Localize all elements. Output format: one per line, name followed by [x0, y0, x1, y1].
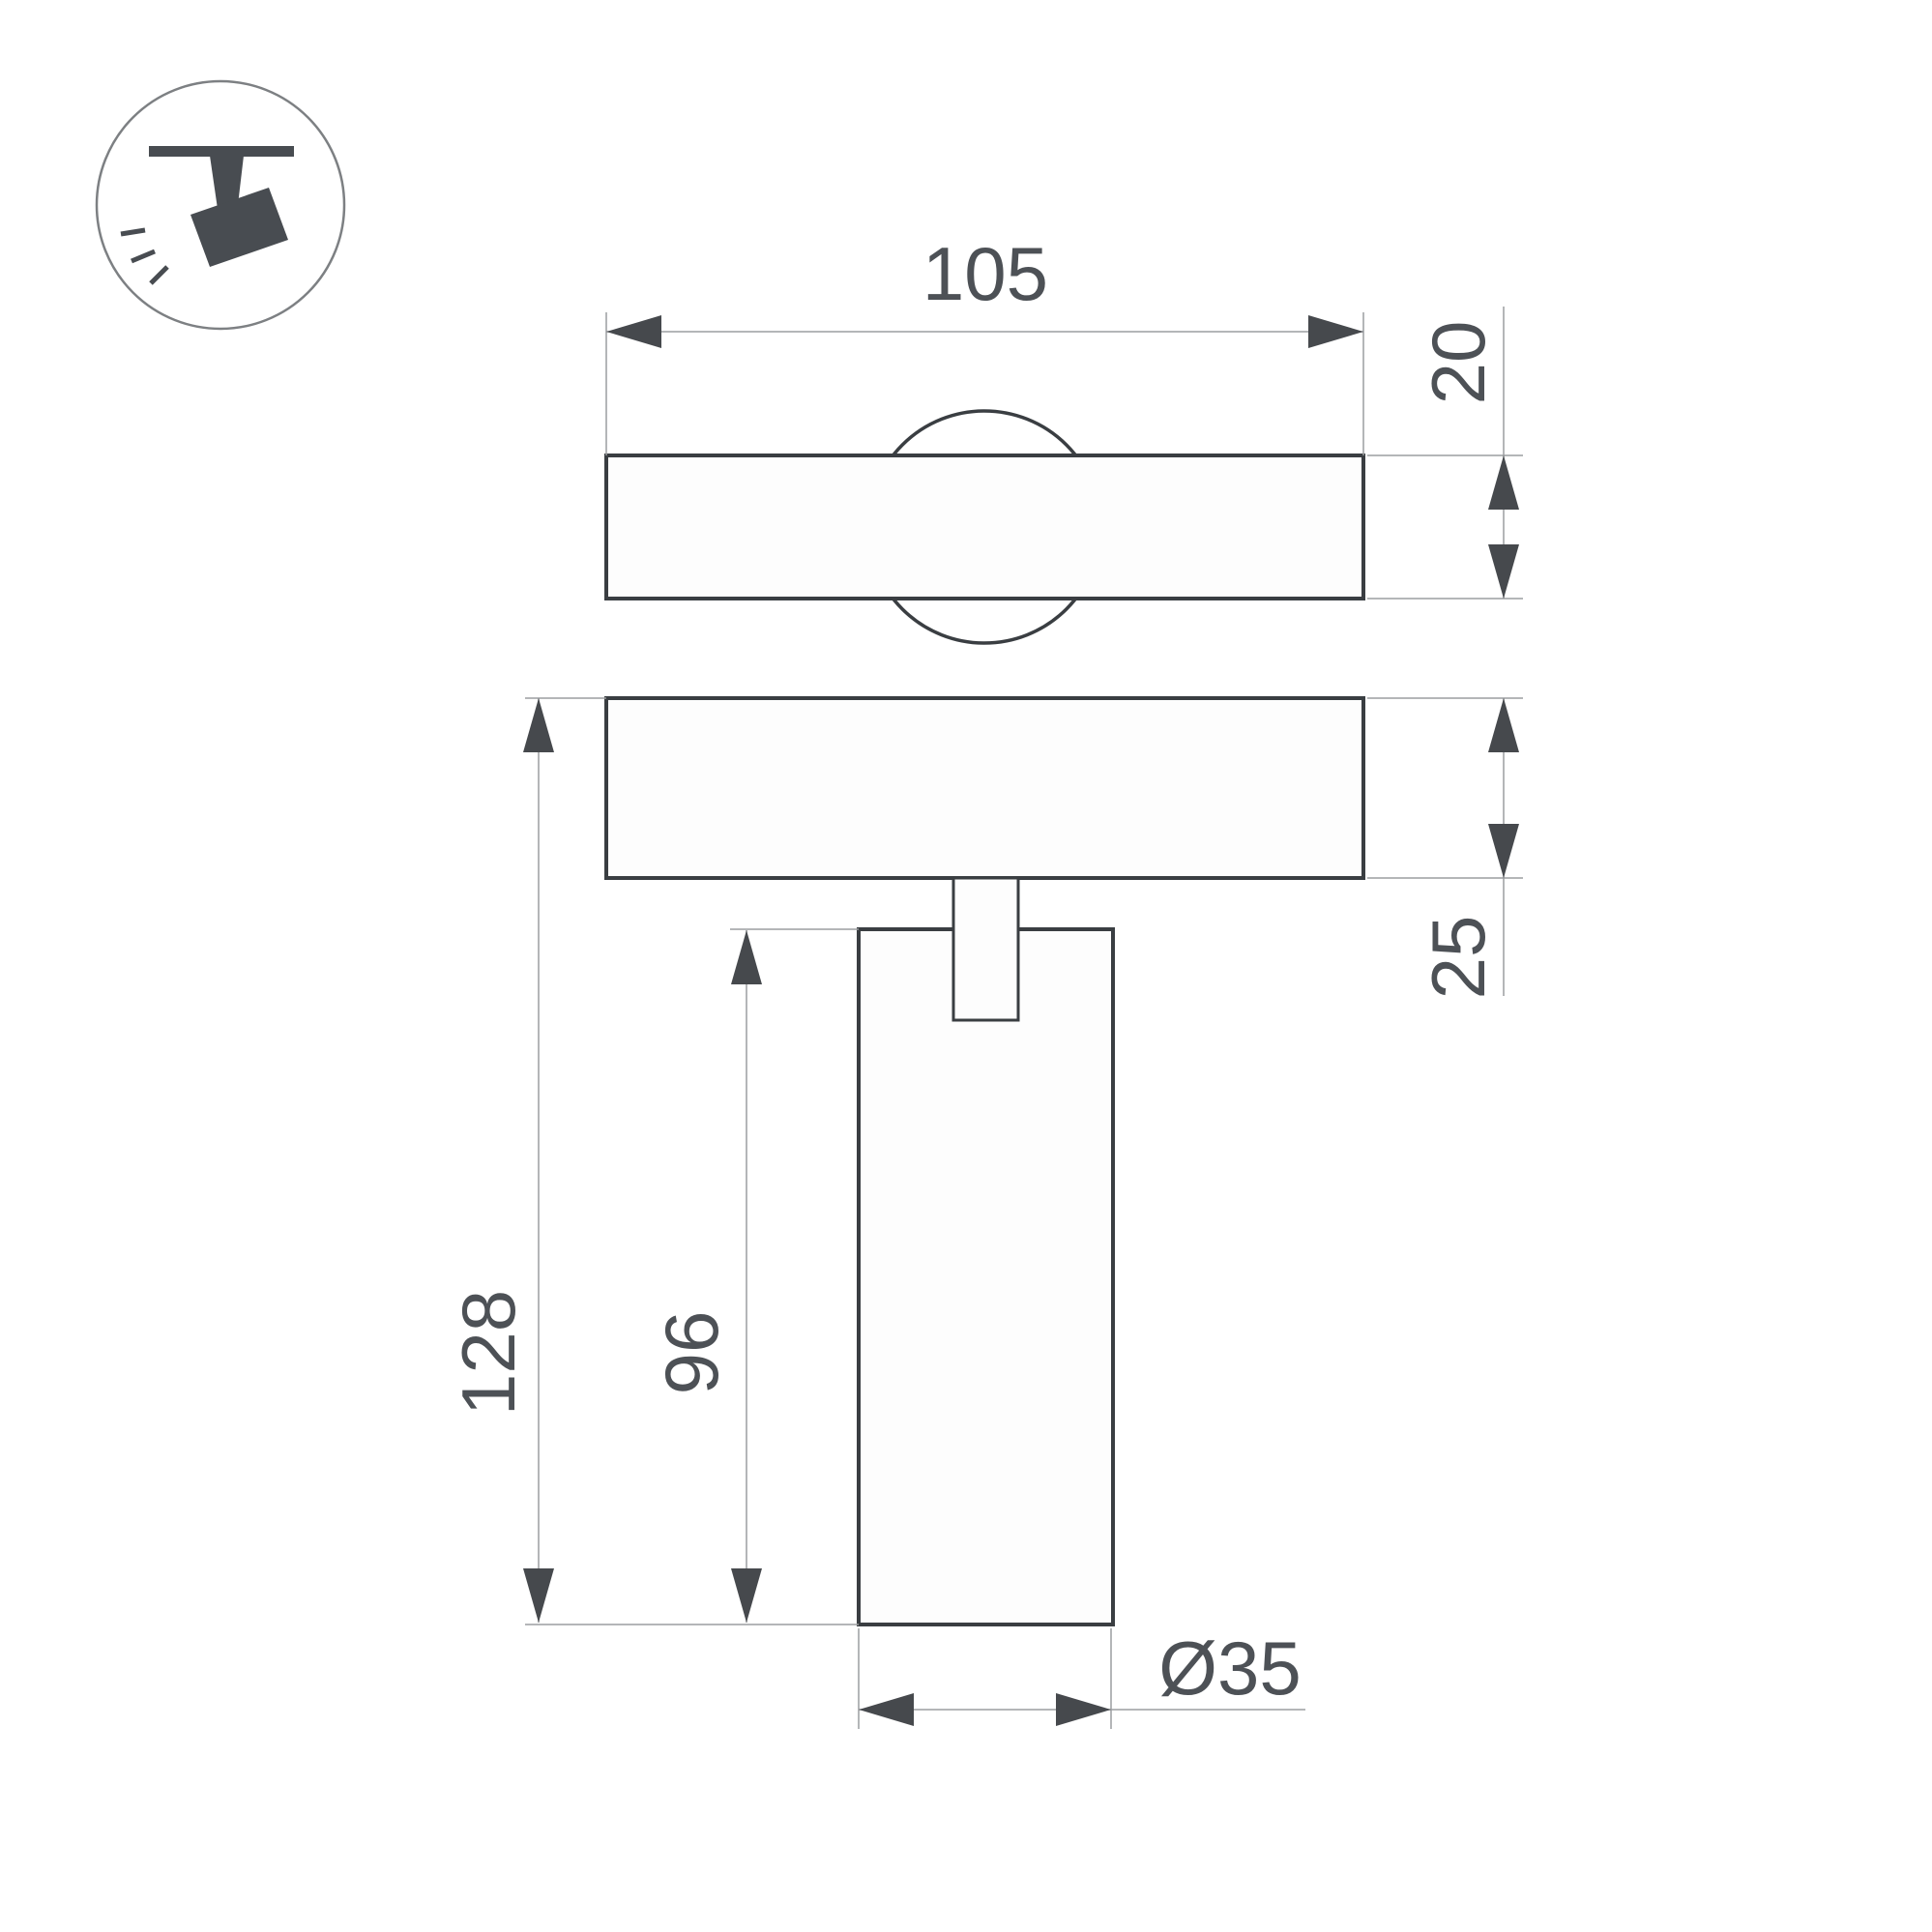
arrowhead: [731, 930, 762, 984]
dimension-body-height: 96: [649, 929, 859, 1623]
track-plate-side: [606, 698, 1363, 878]
track-plate-top: [606, 455, 1363, 599]
arrowhead: [1056, 1693, 1111, 1726]
dimension-label-128: 128: [446, 1290, 531, 1416]
arrowhead: [523, 698, 554, 752]
arrowhead: [731, 1568, 762, 1623]
arrowhead: [1488, 544, 1519, 599]
arrowhead: [1488, 698, 1519, 752]
dimension-label-20: 20: [1416, 321, 1501, 405]
arrowhead: [523, 1568, 554, 1623]
dimension-base-thickness: 25: [1367, 698, 1523, 999]
dimension-track-thickness: 20: [1367, 307, 1523, 599]
top-view: [606, 411, 1363, 643]
technical-drawing: 105 20 25 128 96: [0, 0, 1932, 1932]
arrowhead: [1488, 824, 1519, 878]
dimension-track-width: 105: [606, 231, 1363, 455]
arrowhead: [1488, 455, 1519, 510]
track-spotlight-icon: [97, 81, 344, 329]
lamp-cylinder: [859, 929, 1113, 1625]
dimension-label-d35: Ø35: [1158, 1625, 1301, 1711]
arrowhead: [1308, 315, 1363, 348]
dimension-label-96: 96: [649, 1311, 734, 1395]
drawing-canvas: 105 20 25 128 96: [0, 0, 1932, 1932]
dimension-label-25: 25: [1416, 916, 1501, 1000]
dimension-label-105: 105: [922, 231, 1048, 316]
side-view: [606, 698, 1363, 1625]
icon-track-rail: [149, 146, 294, 157]
dimension-body-diameter: Ø35: [859, 1625, 1305, 1729]
arrowhead: [606, 315, 661, 348]
pivot-stem: [953, 878, 1018, 1020]
arrowhead: [859, 1693, 914, 1726]
